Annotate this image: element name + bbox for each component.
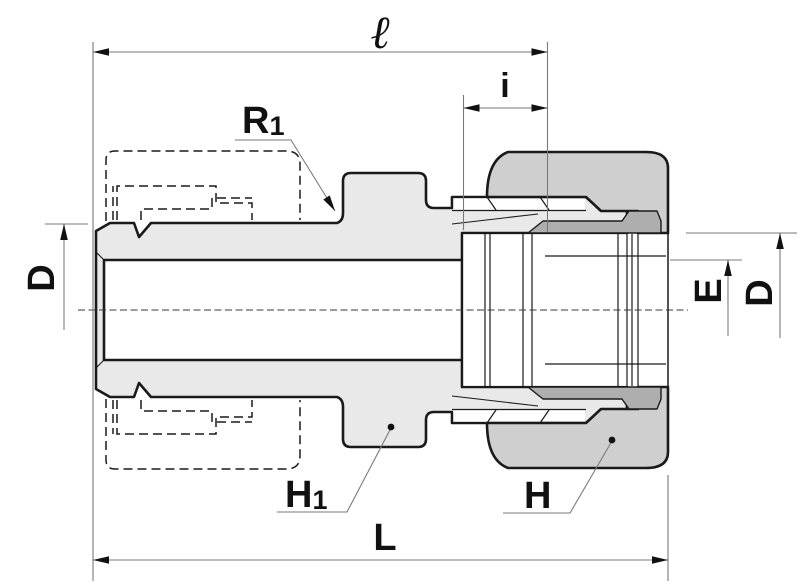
label-ell: ℓ (370, 5, 390, 59)
male-thread-band-top (453, 198, 585, 210)
male-thread-band-bottom (453, 410, 585, 422)
label-l: L (373, 517, 396, 559)
label-d-right: D (739, 279, 781, 306)
label-e-right: E (688, 278, 730, 303)
leader-dot-h (609, 437, 616, 444)
label-h: H (524, 475, 551, 517)
label-d-left: D (21, 264, 63, 291)
leader-dot-h1 (388, 424, 395, 431)
technical-drawing-canvas: ℓ i R1 D E D H1 H L (0, 0, 800, 584)
drawing-background (0, 0, 800, 584)
fitting-drawing: ℓ i R1 D E D H1 H L (0, 0, 800, 584)
label-i: i (500, 67, 509, 105)
